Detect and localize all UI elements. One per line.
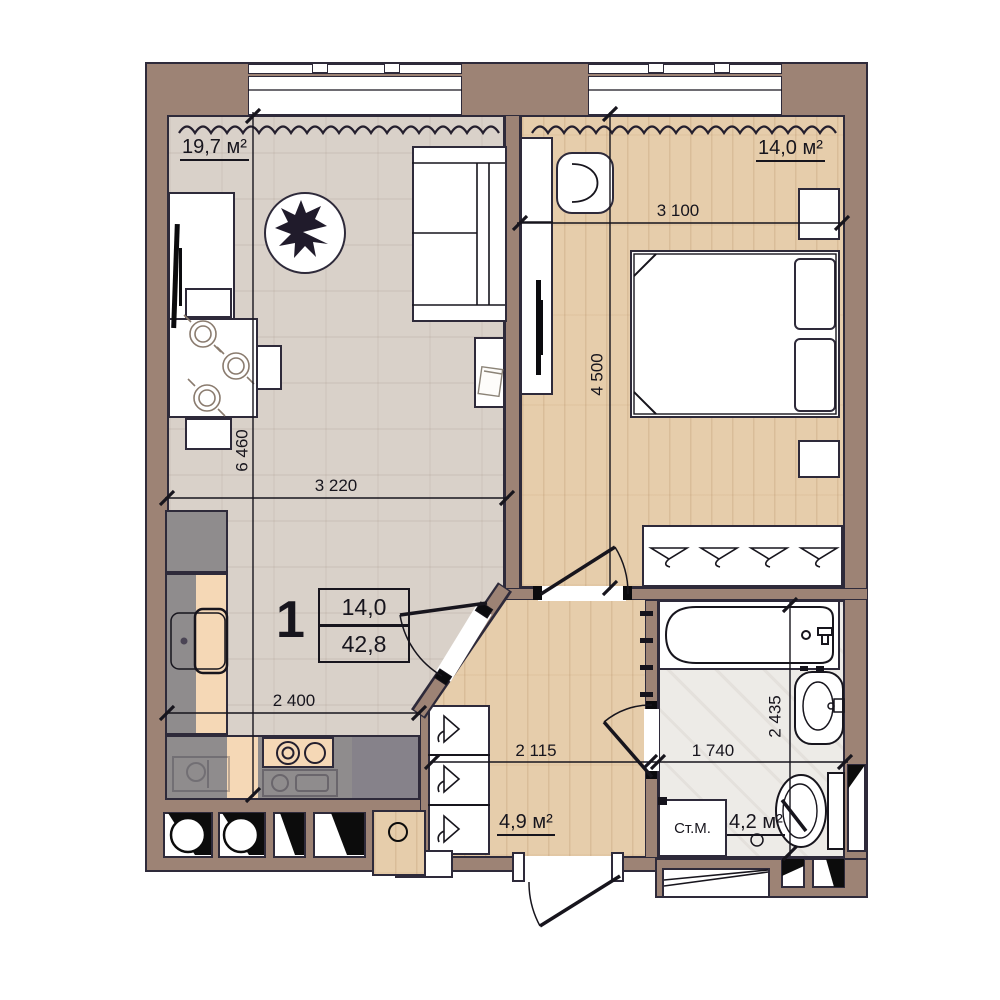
- bathroom-door-opening: [644, 709, 659, 771]
- hall-area-label: 4,9 м²: [497, 811, 555, 836]
- nightstand: [798, 188, 840, 240]
- dim-living-width: 3 220: [300, 477, 372, 494]
- appliance-cabinet: [273, 812, 306, 858]
- pillow: [794, 338, 836, 412]
- entry-door-jamb: [512, 852, 525, 882]
- appliance-washer: [163, 812, 213, 858]
- nightstand: [798, 440, 840, 478]
- entry-door-jamb: [611, 852, 624, 882]
- window-mullion: [312, 63, 328, 73]
- washing-machine: Ст.М.: [658, 799, 727, 857]
- bathtub: [658, 600, 840, 670]
- window-living-outer: [248, 64, 462, 74]
- dining-chair: [256, 345, 282, 390]
- hall-wardrobe: [428, 705, 490, 855]
- dining-table: [168, 318, 258, 418]
- window-bedroom-outer: [588, 64, 782, 74]
- dim-bedroom-width: 3 100: [642, 202, 714, 219]
- wall-hall-bath-upper: [645, 600, 658, 712]
- entry-cabinet: [372, 810, 426, 876]
- dining-chair: [185, 418, 232, 450]
- round-rug: [264, 192, 346, 274]
- dim-hall-width: 2 115: [500, 742, 572, 759]
- kitchen-worktop-strip: [227, 737, 258, 798]
- appliance-cabinet: [313, 812, 366, 858]
- total-area-value: 42,8: [320, 627, 408, 661]
- apartment-number: 1: [276, 594, 305, 646]
- window-mullion: [384, 63, 400, 73]
- kitchen-counter-dark: [352, 737, 418, 798]
- dim-bedroom-height: 4 500: [589, 339, 606, 411]
- area-info-box: 14,0 42,8: [318, 588, 410, 663]
- dim-living-height: 6 460: [234, 415, 251, 487]
- dining-chair: [185, 288, 232, 318]
- fridge: [165, 510, 228, 573]
- dim-bath-width: 1 740: [677, 742, 749, 759]
- dim-bath-height: 2 435: [767, 681, 784, 753]
- shaft-window: [847, 764, 866, 852]
- floor-plan: Ст.М.: [0, 0, 1000, 1000]
- bedroom-door-opening: [538, 586, 626, 601]
- bedroom-desk: [520, 137, 553, 395]
- cooktop: [262, 737, 334, 768]
- window-bedroom: [588, 76, 782, 115]
- wall-living-bedroom: [505, 115, 520, 591]
- side-table: [474, 337, 505, 408]
- living-room-area-label: 19,7 м²: [180, 136, 249, 161]
- living-area-value: 14,0: [320, 590, 408, 627]
- bedroom-area-label: 14,0 м²: [756, 137, 825, 162]
- bath-area-label: 4,2 м²: [727, 811, 785, 836]
- entry-door-opening: [524, 856, 614, 886]
- window-living: [248, 76, 462, 115]
- armchair: [556, 152, 614, 214]
- appliance-dryer: [218, 812, 266, 858]
- sofa: [412, 146, 507, 322]
- kitchen-worktop-left: [196, 575, 226, 733]
- wall-hall-bath-lower: [645, 770, 658, 858]
- window-mullion: [648, 63, 664, 73]
- window-mullion: [714, 63, 730, 73]
- shaft-window: [812, 858, 845, 888]
- dim-kitchen-width: 2 400: [258, 692, 330, 709]
- pillow: [794, 258, 836, 330]
- stairs: [662, 868, 770, 898]
- shaft-window: [781, 858, 805, 888]
- bedroom-wardrobe: [642, 525, 843, 587]
